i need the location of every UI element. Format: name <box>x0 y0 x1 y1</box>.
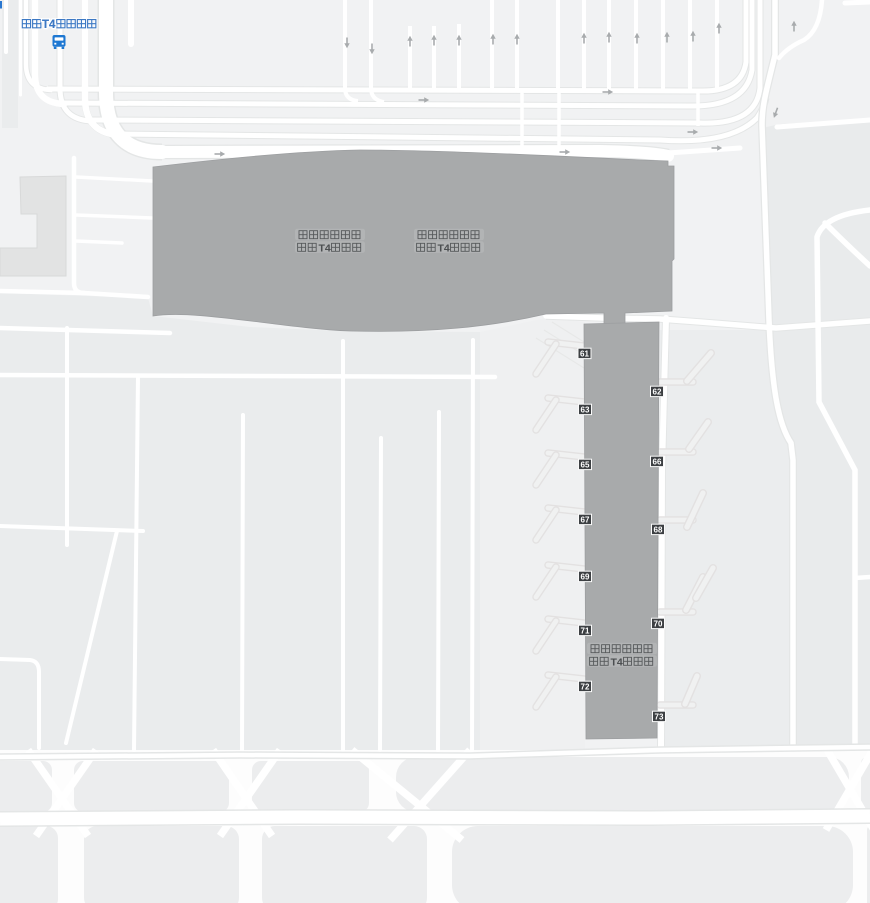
svg-text:66: 66 <box>653 457 662 466</box>
svg-text:72: 72 <box>581 682 590 691</box>
svg-text:62: 62 <box>653 387 662 396</box>
svg-text:70: 70 <box>654 619 663 628</box>
svg-text:T4: T4 <box>611 656 623 668</box>
svg-text:71: 71 <box>581 626 590 635</box>
svg-text:T4: T4 <box>42 19 56 31</box>
svg-text:T4: T4 <box>438 242 450 254</box>
svg-text:68: 68 <box>654 525 663 534</box>
svg-text:T4: T4 <box>319 242 331 254</box>
svg-text:67: 67 <box>581 515 590 524</box>
svg-text:63: 63 <box>581 405 590 414</box>
svg-text:73: 73 <box>655 712 664 721</box>
svg-text:61: 61 <box>580 349 589 358</box>
svg-text:65: 65 <box>581 460 590 469</box>
svg-text:69: 69 <box>581 572 590 581</box>
